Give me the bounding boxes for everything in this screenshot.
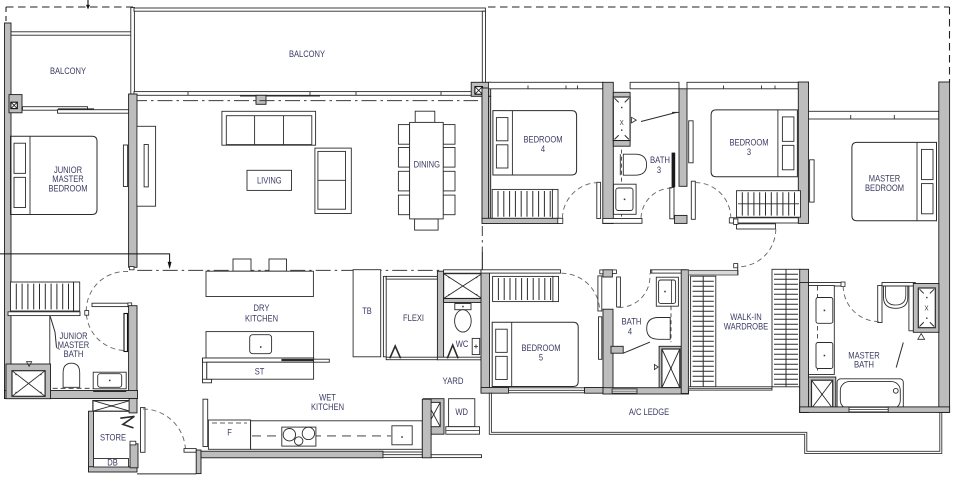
svg-text:BALCONY: BALCONY	[289, 49, 325, 59]
svg-text:A/C LEDGE: A/C LEDGE	[629, 407, 669, 417]
svg-text:WD: WD	[455, 407, 468, 417]
svg-text:DB: DB	[107, 458, 118, 468]
svg-text:BATH: BATH	[621, 316, 641, 326]
svg-text:ST: ST	[255, 367, 265, 377]
svg-text:DINING: DINING	[414, 159, 440, 169]
svg-text:BATH: BATH	[63, 349, 83, 359]
svg-text:4: 4	[541, 144, 545, 154]
svg-text:KITCHEN: KITCHEN	[311, 402, 344, 412]
svg-text:DRY: DRY	[254, 303, 270, 313]
svg-text:MASTER: MASTER	[869, 174, 901, 184]
svg-text:BEDROOM: BEDROOM	[865, 183, 904, 193]
svg-text:LIVING: LIVING	[257, 175, 282, 185]
svg-text:WARDROBE: WARDROBE	[724, 321, 768, 331]
svg-text:X: X	[924, 304, 928, 313]
svg-text:BATH: BATH	[650, 155, 670, 165]
svg-text:FLEXI: FLEXI	[403, 313, 424, 323]
svg-text:YARD: YARD	[443, 376, 464, 386]
svg-text:3: 3	[657, 165, 661, 175]
svg-text:F: F	[227, 427, 232, 437]
svg-text:WC: WC	[456, 339, 469, 349]
svg-text:STORE: STORE	[100, 433, 126, 443]
svg-text:4: 4	[628, 326, 632, 336]
svg-text:BALCONY: BALCONY	[50, 66, 86, 76]
svg-text:BATH: BATH	[854, 360, 874, 370]
svg-text:5: 5	[539, 353, 543, 363]
svg-text:BEDROOM: BEDROOM	[524, 135, 563, 145]
svg-text:X: X	[620, 118, 624, 127]
svg-text:BEDROOM: BEDROOM	[522, 343, 561, 353]
svg-text:3: 3	[747, 147, 751, 157]
svg-text:KITCHEN: KITCHEN	[245, 313, 278, 323]
svg-text:TB: TB	[362, 306, 372, 316]
svg-text:BEDROOM: BEDROOM	[730, 138, 769, 148]
svg-text:BEDROOM: BEDROOM	[49, 184, 88, 194]
